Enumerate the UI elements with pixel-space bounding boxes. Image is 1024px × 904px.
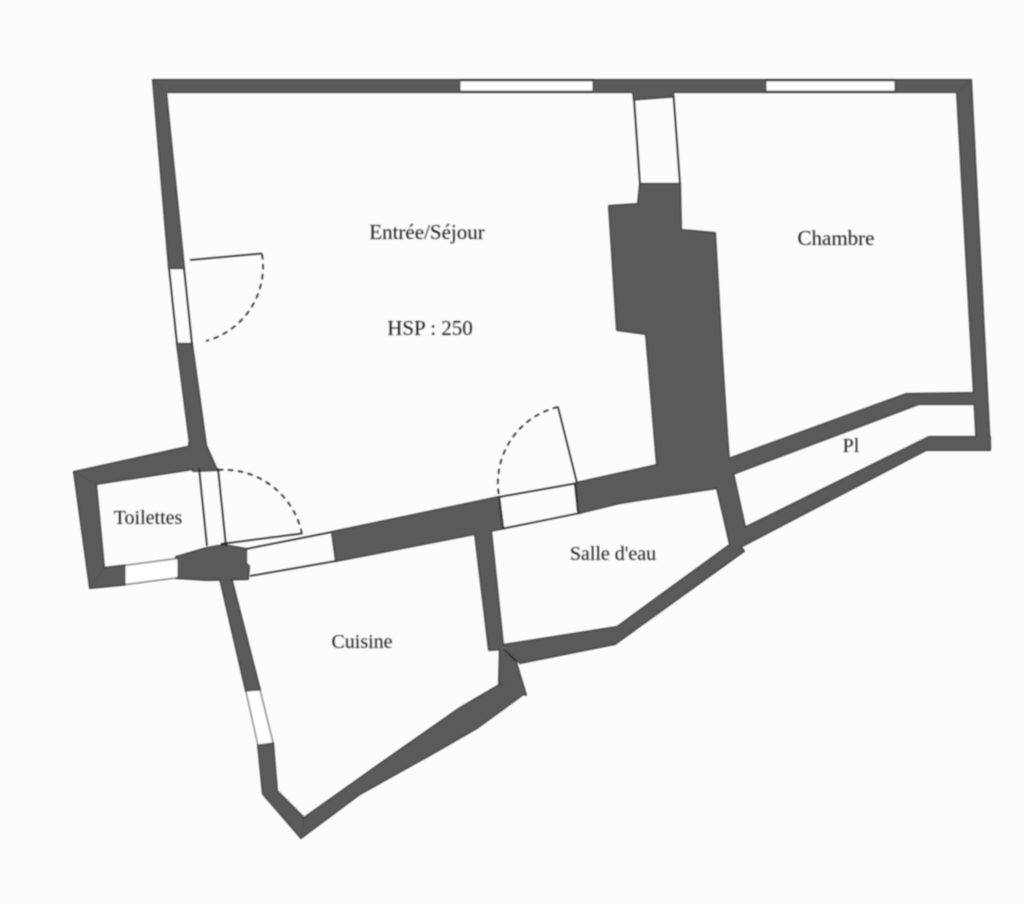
svg-text:Pl: Pl bbox=[843, 435, 860, 457]
svg-text:Chambre: Chambre bbox=[798, 226, 875, 250]
svg-text:Entrée/Séjour: Entrée/Séjour bbox=[369, 220, 484, 244]
svg-text:Toilettes: Toilettes bbox=[114, 507, 183, 529]
svg-text:Cuisine: Cuisine bbox=[331, 631, 392, 653]
svg-text:HSP : 250: HSP : 250 bbox=[387, 316, 473, 340]
svg-text:Salle d'eau: Salle d'eau bbox=[570, 543, 656, 565]
